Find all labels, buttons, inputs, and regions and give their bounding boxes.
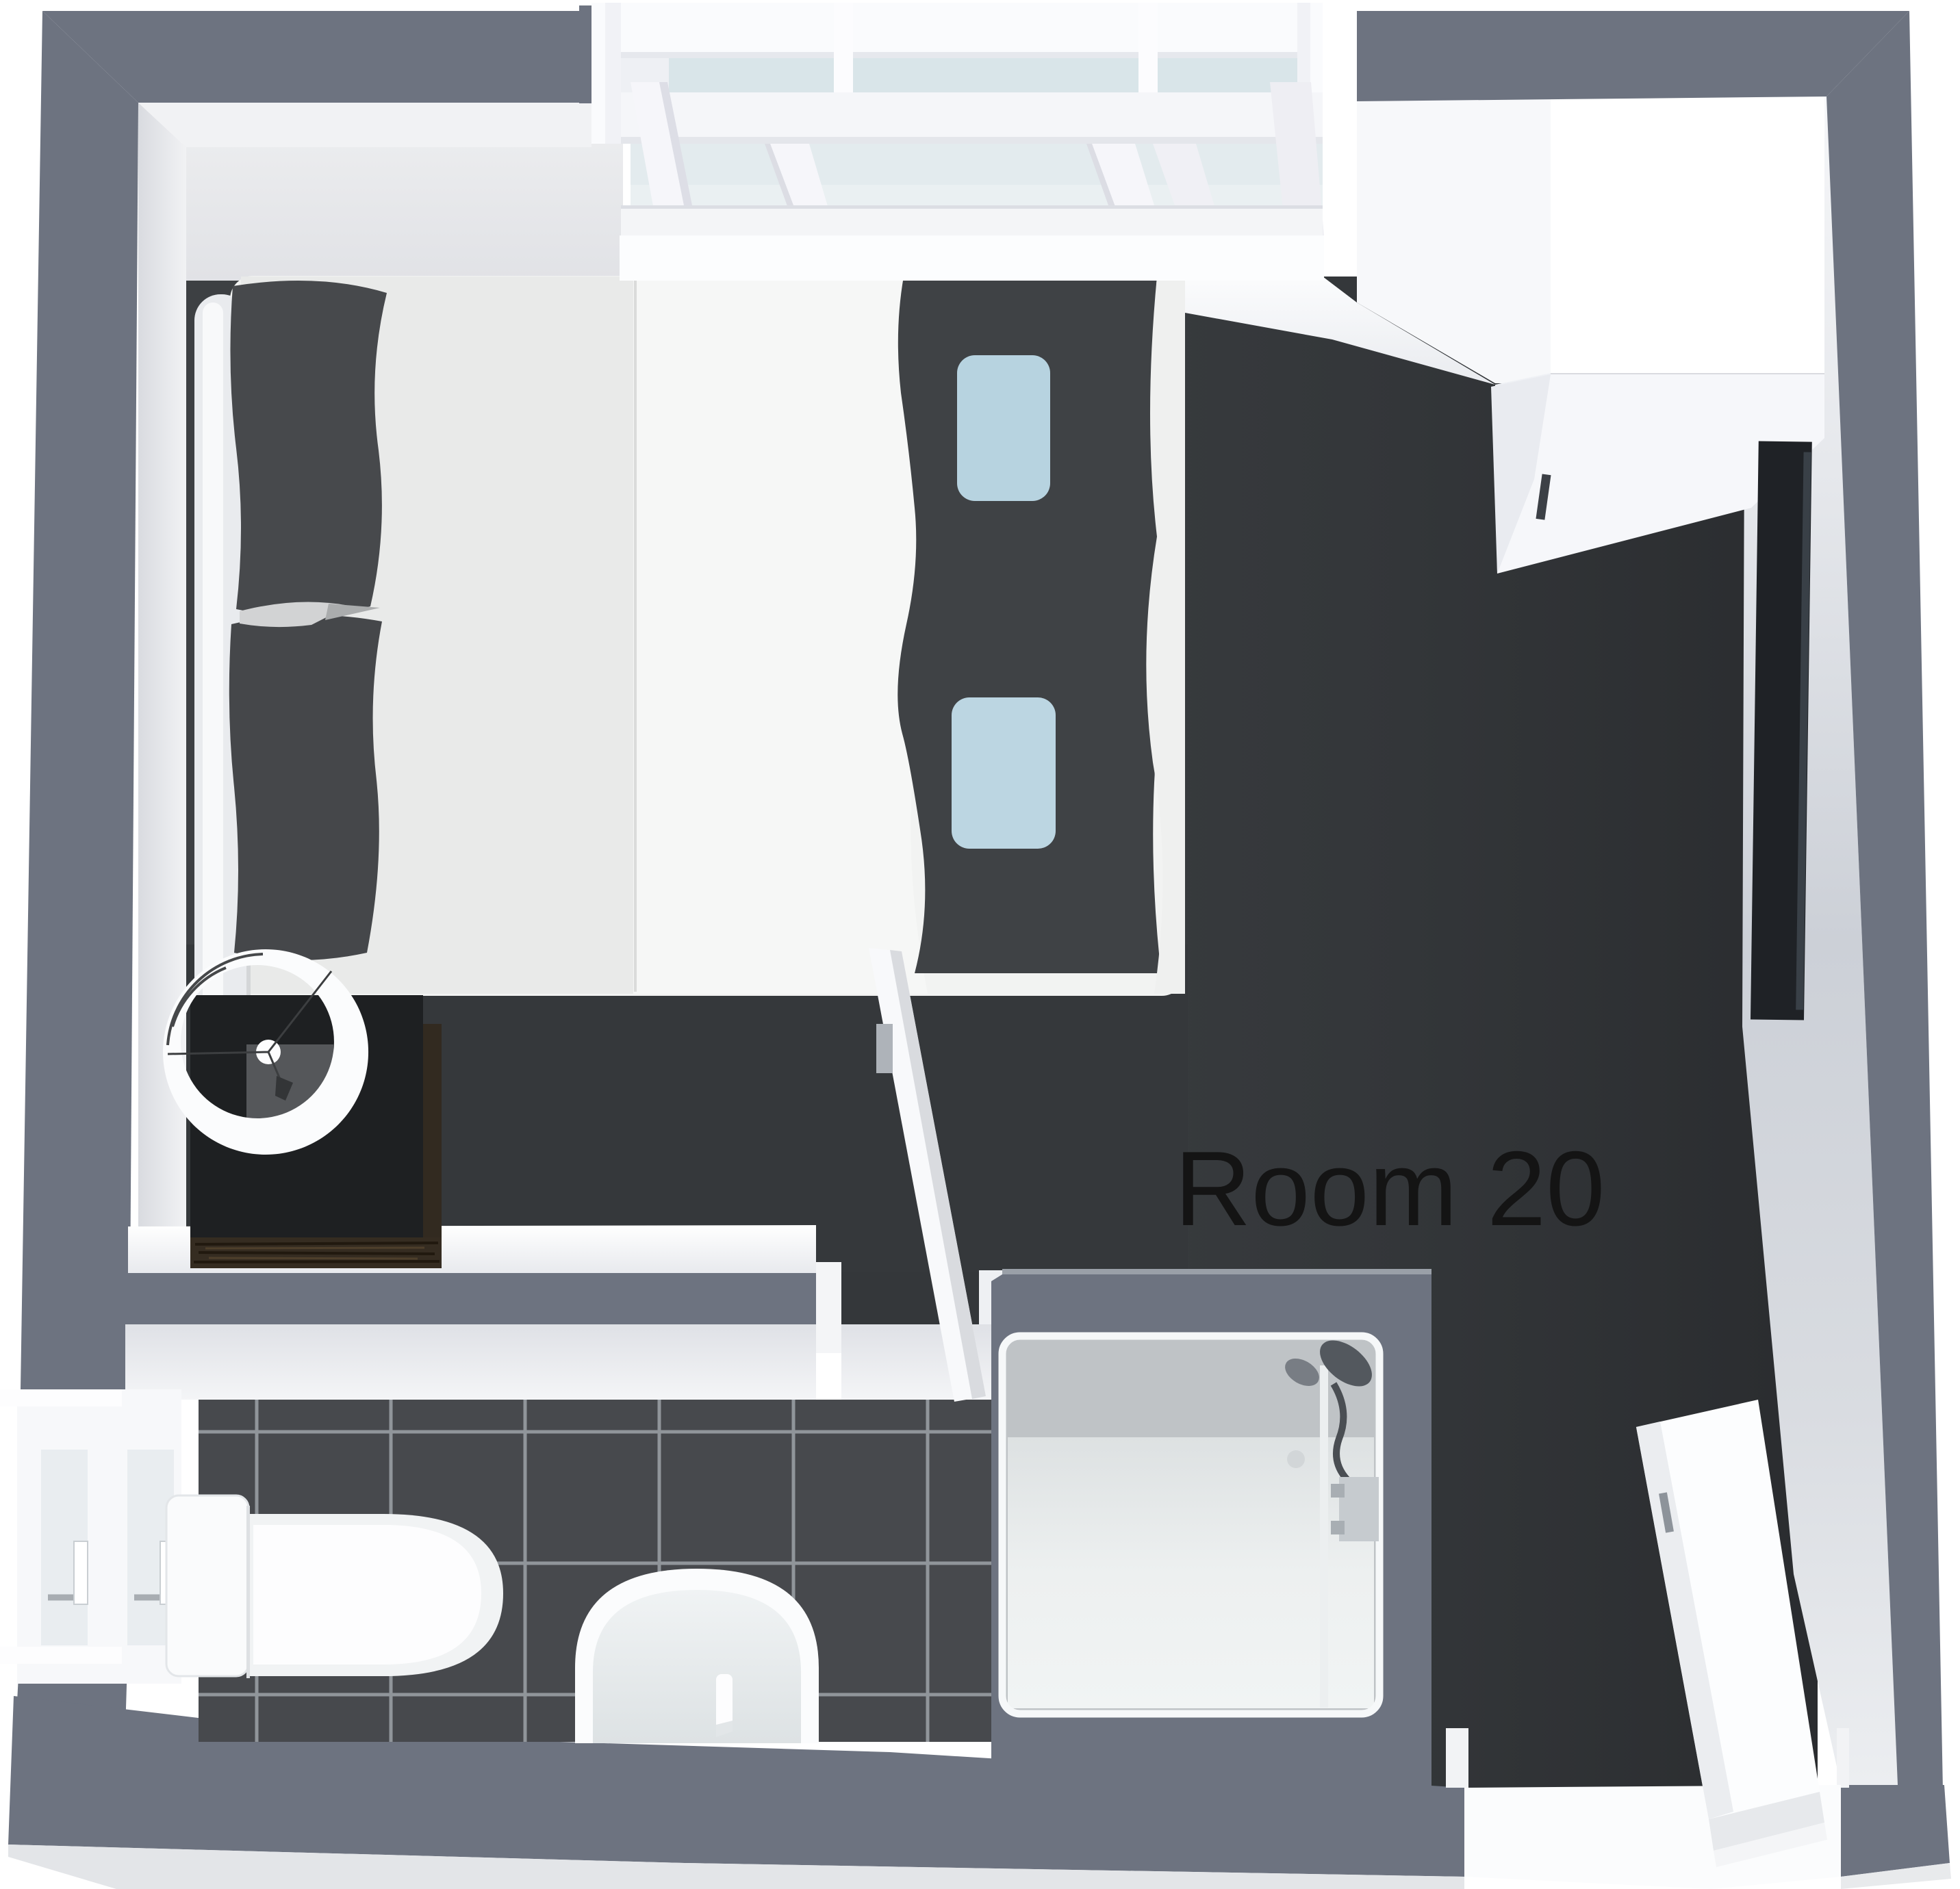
svg-text:Room 20: Room 20 [1175,1129,1605,1248]
